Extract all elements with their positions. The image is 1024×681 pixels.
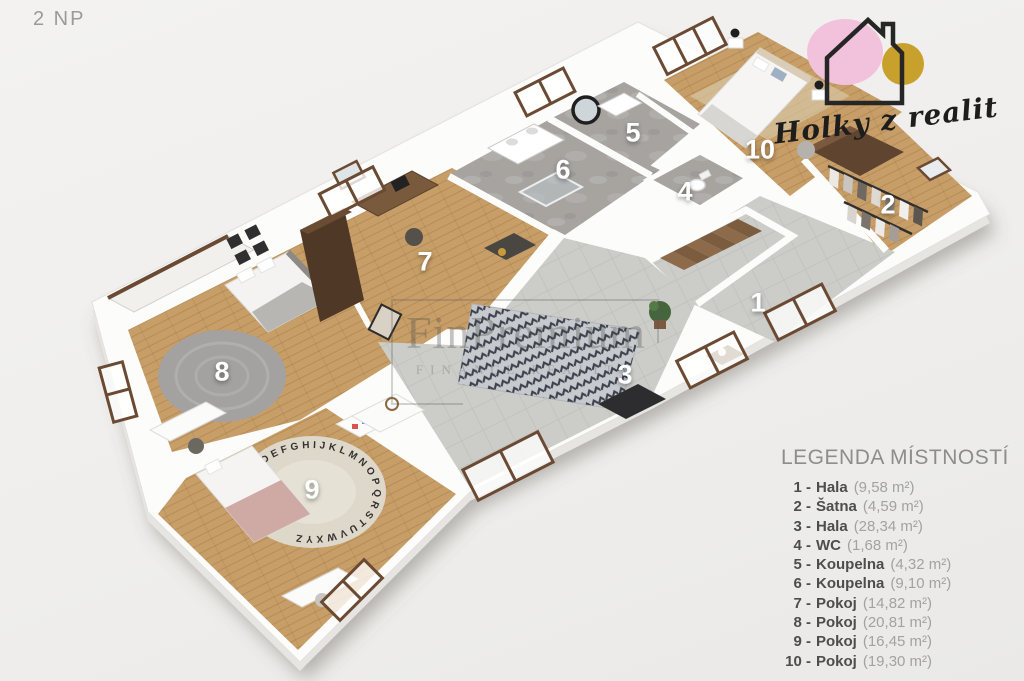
room-number-8: 8 [214, 357, 229, 388]
legend-row: 9 -Pokoj(16,45 m²) [781, 632, 1019, 651]
legend-text: Pokoj [816, 614, 857, 631]
legend-text: (9,58 m²) [854, 479, 915, 496]
room-number-7: 7 [417, 247, 432, 278]
room-number-1: 1 [750, 288, 765, 319]
lamp [731, 29, 740, 38]
legend-text: 3 - [781, 517, 811, 536]
screenshot: ABCDEFGHIJKLMNOPQRSTUVWXYZ [0, 0, 1024, 681]
legend-row: 5 -Koupelna(4,32 m²) [781, 555, 1019, 574]
legend-row: 2 -Šatna(4,59 m²) [781, 497, 1019, 516]
legend-text: 8 - [781, 613, 811, 632]
legend-text: 1 - [781, 478, 811, 497]
floor-label: 2 NP [33, 8, 85, 31]
realtor-logo: Holky z realit [789, 4, 1004, 154]
legend-text: 10 - [781, 652, 811, 671]
legend-row: 4 -WC(1,68 m²) [781, 536, 1019, 555]
legend-row: 10 -Pokoj(19,30 m²) [781, 652, 1019, 671]
room-number-2: 2 [880, 190, 895, 221]
legend-text: 7 - [781, 594, 811, 613]
legend-text: (14,82 m²) [863, 595, 932, 612]
legend-text: Hala [816, 518, 848, 535]
chair [188, 438, 204, 454]
room-number-6: 6 [555, 155, 570, 186]
legend: LEGENDA MÍSTNOSTÍ 1 -Hala(9,58 m²)2 -Šat… [781, 446, 1019, 671]
legend-text: Pokoj [816, 595, 857, 612]
legend-text: (9,10 m²) [890, 575, 951, 592]
office-chair [405, 228, 423, 246]
legend-text: Pokoj [816, 633, 857, 650]
room-number-10: 10 [745, 135, 775, 166]
legend-text: Koupelna [816, 575, 884, 592]
legend-text: (28,34 m²) [854, 518, 923, 535]
room-number-3: 3 [617, 360, 632, 391]
legend-row: 6 -Koupelna(9,10 m²) [781, 574, 1019, 593]
legend-text: 4 - [781, 536, 811, 555]
legend-text: (4,32 m²) [890, 556, 951, 573]
legend-text: Hala [816, 479, 848, 496]
round-mirror [573, 97, 599, 123]
legend-text: (16,45 m²) [863, 633, 932, 650]
legend-row: 8 -Pokoj(20,81 m²) [781, 613, 1019, 632]
legend-text: (19,30 m²) [863, 653, 932, 670]
logo-pink-circle [807, 19, 883, 85]
legend-text: (4,59 m²) [863, 498, 924, 515]
legend-row: 3 -Hala(28,34 m²) [781, 517, 1019, 536]
legend-text: Koupelna [816, 556, 884, 573]
room-number-9: 9 [304, 475, 319, 506]
legend-text: 6 - [781, 574, 811, 593]
room-number-5: 5 [625, 118, 640, 149]
legend-text: (20,81 m²) [863, 614, 932, 631]
legend-row: 1 -Hala(9,58 m²) [781, 478, 1019, 497]
legend-title: LEGENDA MÍSTNOSTÍ [781, 446, 1019, 470]
legend-text: 5 - [781, 555, 811, 574]
nightstand [728, 38, 743, 48]
legend-text: 9 - [781, 632, 811, 651]
room-number-4: 4 [677, 177, 692, 208]
legend-text: (1,68 m²) [847, 537, 908, 554]
legend-text: WC [816, 537, 841, 554]
legend-text: Pokoj [816, 653, 857, 670]
legend-rows: 1 -Hala(9,58 m²)2 -Šatna(4,59 m²)3 -Hala… [781, 478, 1019, 671]
legend-text: 2 - [781, 497, 811, 516]
legend-row: 7 -Pokoj(14,82 m²) [781, 594, 1019, 613]
legend-text: Šatna [816, 498, 857, 515]
